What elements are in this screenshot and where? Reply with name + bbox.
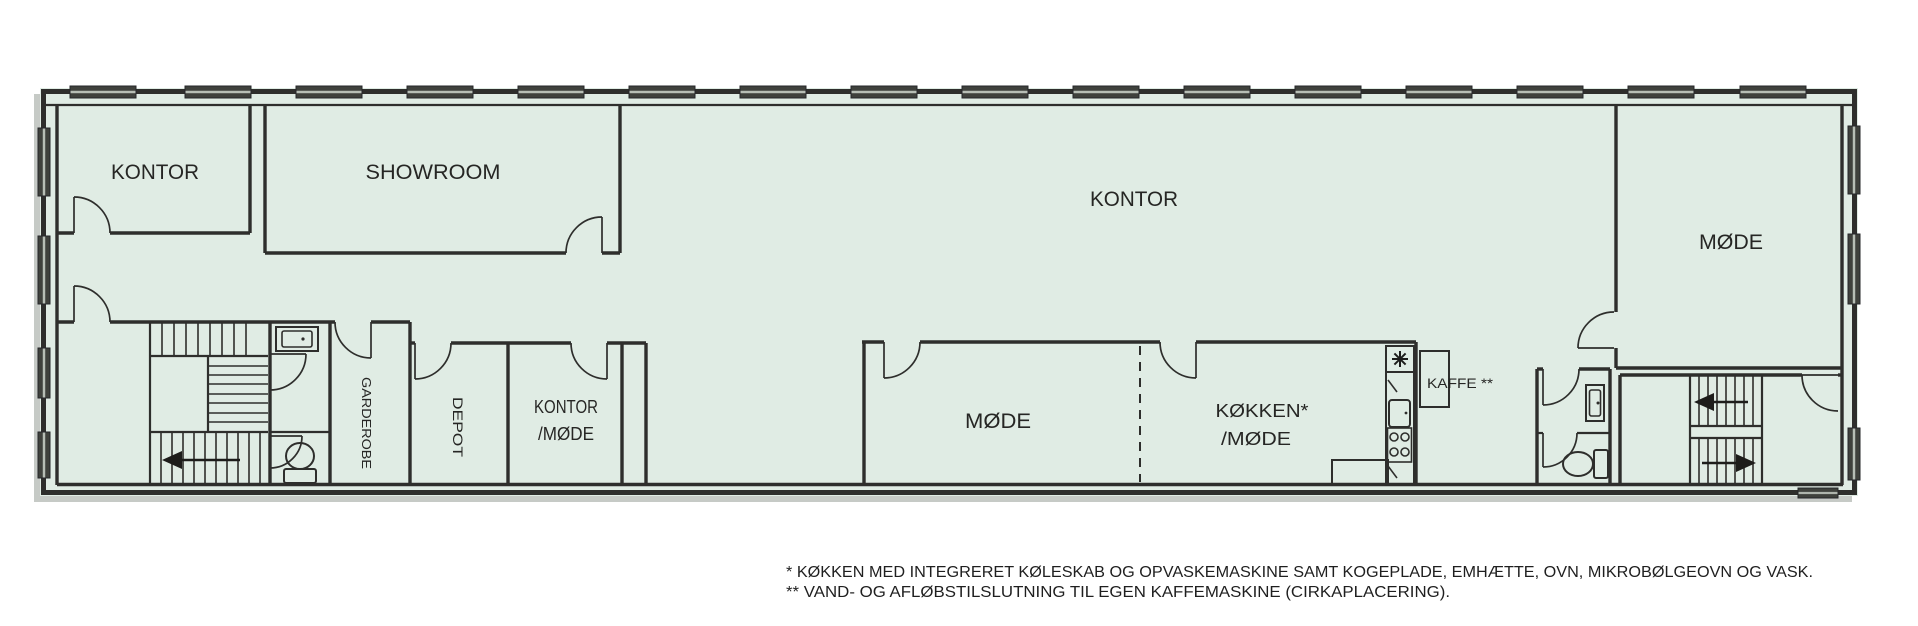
- room-label-showroom: SHOWROOM: [366, 161, 501, 184]
- room-label-koekken-1: KØKKEN*: [1216, 400, 1309, 421]
- room-label-kontor-top-left: KONTOR: [111, 161, 199, 184]
- room-label-kaffe: KAFFE **: [1427, 376, 1494, 391]
- cooktop-star-icon: [1392, 351, 1408, 367]
- room-label-koekken-2: /MØDE: [1221, 428, 1291, 449]
- floorplan-canvas: KONTOR SHOWROOM KONTOR MØDE KONTOR /MØDE…: [0, 0, 1918, 626]
- floor-area: [40, 88, 1858, 496]
- footnotes: * KØKKEN MED INTEGRERET KØLESKAB OG OPVA…: [786, 564, 1813, 601]
- footnote-line-2: ** VAND- OG AFLØBSTILSLUTNING TIL EGEN K…: [786, 584, 1450, 601]
- room-label-kontor-moede-2: /MØDE: [538, 424, 594, 444]
- floorplan-svg: KONTOR SHOWROOM KONTOR MØDE KONTOR /MØDE…: [0, 0, 1918, 626]
- room-label-garderobe: GARDEROBE: [359, 377, 374, 469]
- room-label-depot: DEPOT: [450, 397, 466, 458]
- building-slab: [34, 88, 1858, 502]
- room-label-kontor-moede-1: KONTOR: [534, 397, 598, 417]
- footnote-line-1: * KØKKEN MED INTEGRERET KØLESKAB OG OPVA…: [786, 564, 1813, 581]
- room-label-moede-mid: MØDE: [965, 410, 1031, 433]
- room-label-moede-right: MØDE: [1699, 231, 1763, 254]
- room-label-kontor-main: KONTOR: [1090, 188, 1178, 211]
